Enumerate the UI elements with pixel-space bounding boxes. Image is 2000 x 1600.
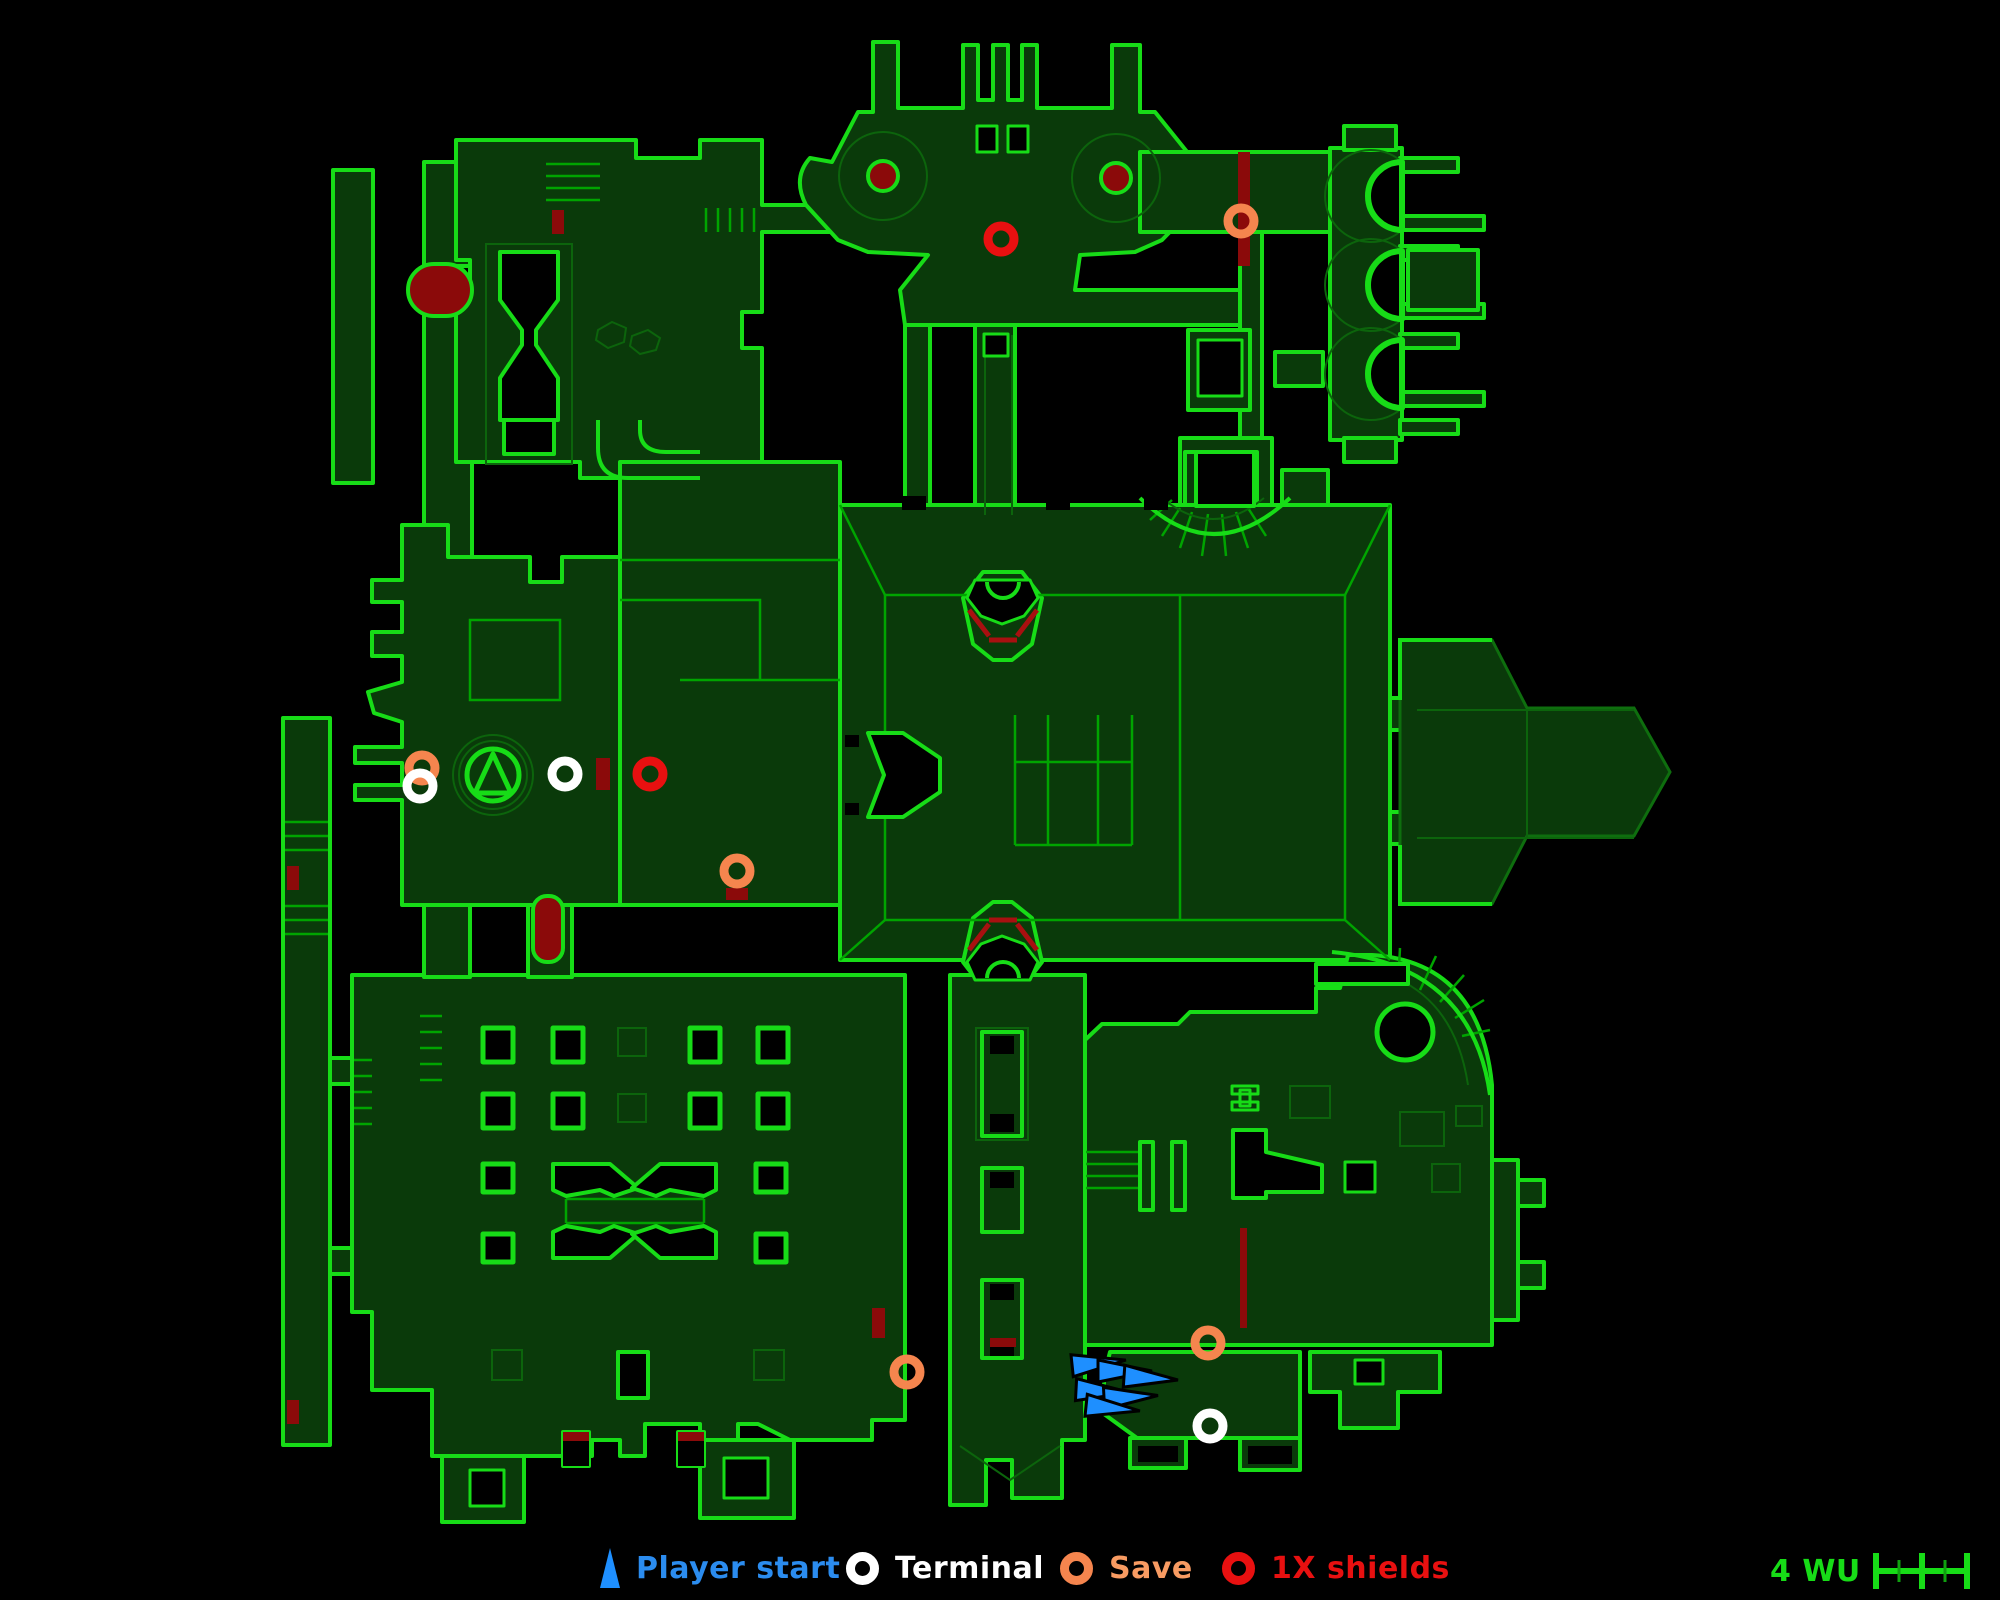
scale-label: 4 WU	[1770, 1554, 1861, 1589]
legend-item-player-start: Player start	[600, 1542, 840, 1594]
legend-label-terminal: Terminal	[895, 1551, 1044, 1586]
region-band-left	[620, 462, 840, 905]
terminal-icon	[846, 1552, 879, 1585]
region-left-column-a	[333, 170, 373, 483]
legend-label-save: Save	[1109, 1551, 1193, 1586]
save-icon	[1060, 1552, 1093, 1585]
map-viewer: Player start Terminal Save 1X shields 4 …	[0, 0, 2000, 1600]
legend-label-shields: 1X shields	[1271, 1551, 1450, 1586]
legend-item-terminal: Terminal	[846, 1542, 1044, 1594]
region-midleft-rooms	[355, 525, 620, 942]
scale-ruler-icon	[1871, 1549, 1975, 1593]
map-scale: 4 WU	[1770, 1542, 1975, 1600]
legend-item-save: Save	[1060, 1542, 1193, 1594]
region-east-arrow-room	[1400, 640, 1670, 904]
legend-item-shields: 1X shields	[1222, 1542, 1450, 1594]
hazard-vpill	[533, 896, 563, 962]
region-room-under-comb	[1408, 250, 1478, 310]
level-map	[0, 0, 2000, 1600]
hazard-pill	[408, 264, 472, 316]
region-central-hall	[840, 505, 1390, 960]
shields-icon	[1222, 1552, 1255, 1585]
player-start-icon	[600, 1548, 620, 1588]
legend: Player start Terminal Save 1X shields 4 …	[0, 1542, 2000, 1600]
region-top-corridor	[1140, 152, 1330, 232]
legend-label-player-start: Player start	[636, 1551, 840, 1586]
region-left-strip	[283, 718, 330, 1445]
